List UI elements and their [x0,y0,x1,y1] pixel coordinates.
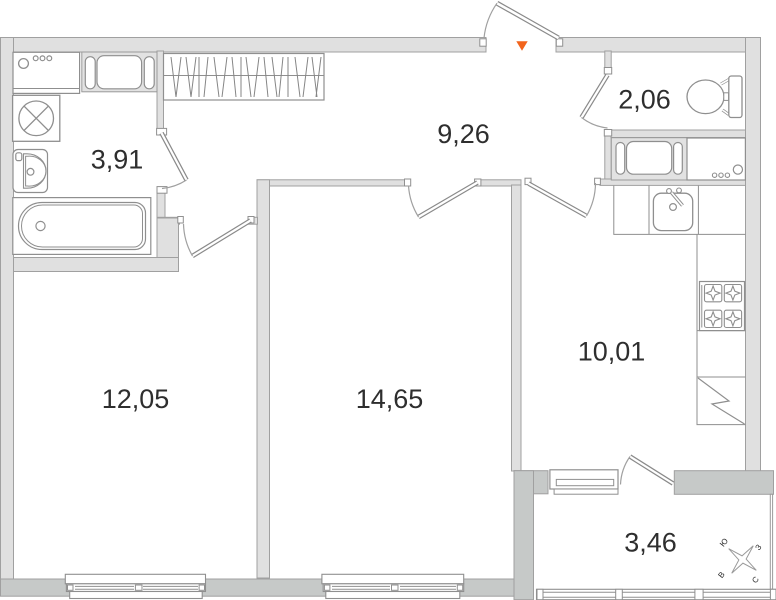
svg-text:3,91: 3,91 [91,145,144,175]
svg-text:3,46: 3,46 [624,528,677,558]
svg-text:12,05: 12,05 [102,384,170,414]
svg-text:14,65: 14,65 [356,384,424,414]
svg-text:2,06: 2,06 [618,85,671,115]
svg-text:9,26: 9,26 [437,119,490,149]
svg-text:10,01: 10,01 [578,337,646,367]
